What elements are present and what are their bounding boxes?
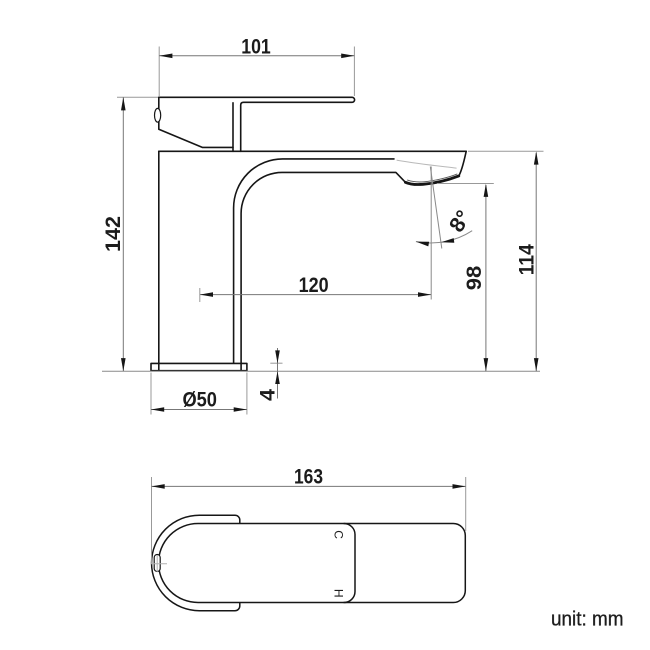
- svg-text:163: 163: [294, 465, 323, 489]
- svg-text:unit: mm: unit: mm: [551, 609, 624, 631]
- svg-text:H: H: [331, 589, 345, 598]
- svg-text:Ø50: Ø50: [182, 387, 217, 411]
- svg-text:98: 98: [462, 266, 486, 291]
- svg-text:4: 4: [256, 389, 280, 401]
- svg-text:101: 101: [241, 34, 271, 58]
- svg-text:142: 142: [101, 216, 125, 252]
- svg-text:C: C: [331, 530, 345, 539]
- svg-text:114: 114: [514, 244, 538, 275]
- svg-text:120: 120: [299, 273, 329, 297]
